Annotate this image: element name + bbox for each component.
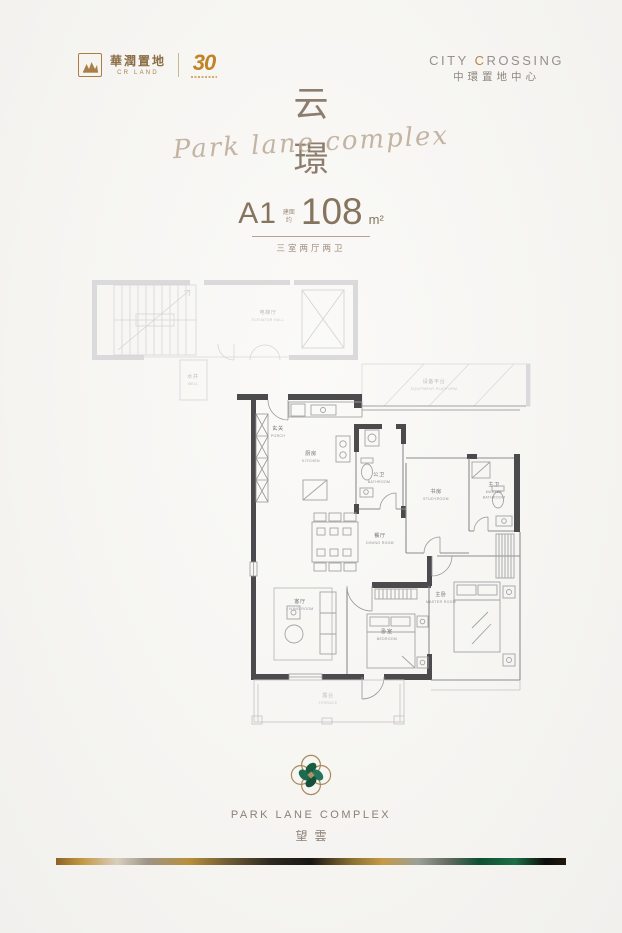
room-label-masterbath-en1: MASTER	[486, 490, 503, 494]
crland-mountain-icon	[78, 53, 102, 77]
room-label-dining-en: DINING ROOM	[366, 541, 394, 545]
project-name-group: CITY CROSSING 中環置地中心	[429, 54, 564, 83]
bathroom-fixtures-icon	[360, 430, 379, 497]
room-label-well-en: WELL	[188, 382, 199, 386]
room-label-terrace-zh: 露台	[322, 691, 333, 699]
bedroom-bed-icon	[367, 589, 428, 668]
room-label-bathroom-zh: 公卫	[373, 471, 384, 478]
crland-name-zh: 華潤置地	[110, 55, 166, 67]
crland-name-en: CR LAND	[117, 70, 159, 76]
crland-brand-text: 華潤置地 CR LAND	[110, 55, 166, 76]
unit-code: A1	[238, 199, 277, 229]
project-name-en: CITY CROSSING	[429, 54, 564, 67]
room-label-masterbath-zh: 主卫	[488, 480, 499, 488]
elevator-shaft	[302, 290, 344, 348]
anniversary-number: 30	[193, 52, 215, 74]
equipment-platform	[362, 364, 530, 406]
project-en-gold-c: C	[475, 53, 487, 68]
windows	[250, 562, 322, 680]
master-bathroom-fixtures-icon	[472, 462, 512, 526]
unit-area-prefix: 建面 约	[283, 210, 295, 226]
public-door-arcs	[144, 344, 289, 360]
anniversary-30-logo: 30	[191, 52, 217, 78]
footer-brand: PARK LANE COMPLEX 望雲	[0, 752, 622, 844]
footer-brand-zh: 望雲	[0, 827, 622, 844]
crland-logo-group: 華潤置地 CR LAND 30	[78, 52, 217, 78]
title-char-bottom: 璟	[0, 143, 622, 178]
room-label-master-en: MASTER ROOM	[426, 600, 456, 604]
parklane-emblem-icon	[285, 752, 337, 798]
kitchen-counter-icon	[289, 402, 362, 500]
room-label-study-zh: 书房	[430, 487, 441, 495]
master-bed-icon	[454, 534, 515, 666]
public-area: 电梯厅 ELEVATOR HALL 水井 WELL 设备平台 EQUIPMENT…	[92, 280, 530, 406]
room-label-elevator-en: ELEVATOR HALL	[252, 318, 284, 322]
project-en-city: CITY	[429, 53, 475, 68]
anniversary-microtext-bar	[191, 76, 217, 78]
well-shaft	[180, 360, 207, 400]
unit-info: A1 建面 约 108 m² 三室两厅两卫	[0, 196, 622, 254]
room-label-master-zh: 主卧	[435, 590, 446, 598]
floor-plan-svg: 电梯厅 ELEVATOR HALL 水井 WELL 设备平台 EQUIPMENT…	[84, 266, 539, 726]
room-label-living-zh: 客厅	[294, 597, 305, 605]
unit-subtitle: 三室两厅两卫	[0, 242, 622, 254]
room-labels: 玄关 PORCH 厨房 KITCHEN 公卫 BATHROOM 书房 STUDY…	[271, 424, 505, 705]
unit-area-prefix-line2: 约	[286, 218, 292, 226]
room-label-elevator-zh: 电梯厅	[259, 308, 276, 316]
dining-table-icon	[312, 513, 358, 571]
stairs	[114, 285, 196, 355]
room-label-dining-zh: 餐厅	[374, 531, 385, 539]
header-divider	[178, 53, 179, 77]
room-label-kitchen-en: KITCHEN	[302, 459, 320, 463]
floor-plan: 电梯厅 ELEVATOR HALL 水井 WELL 设备平台 EQUIPMENT…	[84, 266, 539, 726]
unit-area-value: 108	[301, 196, 363, 229]
unit-area-unit: m²	[369, 212, 384, 227]
room-label-living-en: LIVING ROOM	[286, 607, 313, 611]
pipe-shaft-column	[256, 414, 268, 502]
room-label-well-zh: 水井	[187, 372, 198, 380]
floorplan-poster: 華潤置地 CR LAND 30 CITY CROSSING 中環置地中心 云 P…	[0, 0, 622, 933]
unit-divider-line	[252, 236, 370, 237]
footer-brand-en: PARK LANE COMPLEX	[0, 809, 622, 821]
room-label-terrace-en: TERRACE	[318, 701, 337, 705]
door-arcs	[268, 400, 488, 699]
room-label-porch-zh: 玄关	[272, 424, 283, 432]
room-label-bathroom-en: BATHROOM	[368, 480, 391, 484]
room-label-equipment-zh: 设备平台	[423, 377, 446, 385]
room-label-kitchen-zh: 厨房	[305, 449, 316, 457]
marble-strip	[56, 858, 566, 865]
room-label-equipment-en: EQUIPMENT PLATFORM	[411, 387, 457, 391]
hero-title: 云 Park lane complex 璟	[0, 88, 622, 178]
room-label-study-en: STUDYROOM	[423, 497, 449, 501]
room-label-masterbath-en2: BATHROOM	[483, 496, 506, 500]
unit-area-prefix-line1: 建面	[283, 210, 295, 218]
title-char-top: 云	[0, 88, 622, 123]
room-label-bedroom-en: BEDROOM	[377, 637, 397, 641]
project-en-rossing: ROSSING	[487, 53, 564, 68]
room-label-bedroom-zh: 卧室	[381, 627, 392, 635]
room-label-porch-en: PORCH	[271, 434, 285, 438]
project-name-zh: 中環置地中心	[429, 72, 564, 83]
